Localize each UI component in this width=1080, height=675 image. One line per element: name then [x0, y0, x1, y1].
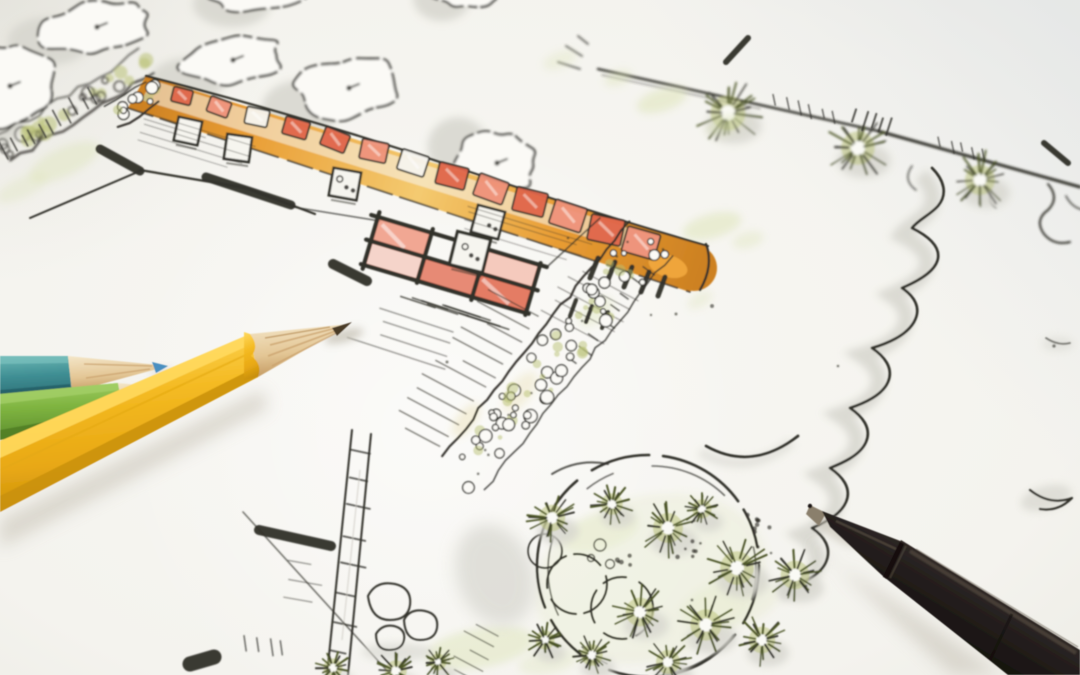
- ink-speck: [446, 361, 449, 364]
- pebble-dot: [588, 307, 591, 310]
- pebble: [460, 454, 465, 459]
- pebble: [621, 251, 626, 256]
- edge-plant-leaf-stroke: [442, 662, 450, 663]
- gravel-dot: [615, 557, 620, 562]
- pebble: [639, 279, 645, 285]
- pebble-green: [554, 351, 559, 356]
- bed-plant-center: [663, 657, 673, 667]
- pebble-green: [553, 342, 563, 352]
- paver: [359, 138, 390, 163]
- pebble: [492, 424, 498, 430]
- pebble: [610, 250, 616, 256]
- fence-shrub-center: [974, 174, 987, 187]
- fence-shrub-leaf-stroke: [858, 128, 859, 140]
- pebble: [472, 436, 480, 444]
- pebble: [495, 449, 504, 458]
- pebble: [128, 95, 137, 104]
- ink-speck: [710, 304, 714, 308]
- pen-tip-point: [808, 504, 812, 508]
- ink-speck: [805, 585, 808, 588]
- pebble: [566, 353, 573, 360]
- gravel-dot: [699, 542, 702, 545]
- pebble: [537, 335, 547, 345]
- pebble-dot: [581, 320, 584, 323]
- garden-plan-photo: [0, 0, 1080, 675]
- gravel-dot: [753, 530, 757, 534]
- bed-plant-leaf-stroke: [593, 641, 594, 649]
- ink-speck: [650, 314, 652, 316]
- ink-speck: [567, 237, 570, 240]
- stepping-square-outline: [449, 231, 490, 272]
- bed-plant-leaf-stroke: [793, 550, 794, 568]
- bed-plant-center: [547, 513, 558, 524]
- pebble-dot: [477, 472, 480, 475]
- pebble: [524, 411, 531, 418]
- pebble: [566, 318, 572, 324]
- pebble-green: [533, 360, 542, 369]
- ink-speck: [837, 365, 840, 368]
- pebble: [522, 422, 529, 429]
- pebble: [599, 277, 610, 288]
- pebble-green: [503, 391, 515, 403]
- gravel-dot: [627, 553, 631, 557]
- pebble-green: [614, 265, 626, 277]
- pebble-green: [603, 269, 609, 275]
- pebble: [648, 239, 654, 245]
- pebble-green: [588, 298, 594, 304]
- pebble: [479, 429, 492, 442]
- gravel-dot: [675, 555, 680, 560]
- stepping-square: [448, 231, 490, 276]
- gravel-dot: [755, 522, 760, 527]
- bed-plant-leaf-stroke: [573, 656, 586, 657]
- stepping-square: [173, 117, 202, 149]
- pebble: [490, 413, 497, 420]
- bed-plant-leaf-stroke: [668, 536, 669, 558]
- hedge-leaf-blob: [114, 66, 127, 79]
- pebble: [566, 340, 576, 350]
- pebble: [146, 82, 158, 94]
- pebble: [600, 314, 612, 326]
- bed-plant-leaf-stroke: [649, 610, 659, 611]
- pebble: [601, 309, 606, 314]
- pebble: [463, 482, 475, 494]
- gravel-dot: [694, 549, 698, 553]
- pebble: [147, 98, 153, 104]
- pebble: [512, 405, 518, 411]
- gravel-dot: [684, 547, 687, 550]
- edge-plant-leaf-stroke: [427, 662, 435, 663]
- ink-speck: [675, 313, 678, 316]
- pebble: [503, 419, 515, 431]
- gravel-dot: [690, 539, 694, 543]
- pebble: [556, 365, 568, 377]
- pebble-dot: [484, 449, 487, 452]
- gravel-dot: [628, 563, 632, 567]
- pebble-dot: [662, 248, 665, 251]
- bed-plant-leaf-stroke: [648, 526, 659, 527]
- pebble-green: [524, 390, 531, 397]
- boulder-shade: [362, 643, 434, 661]
- fence-shrub-leaf-stroke: [978, 154, 979, 172]
- bed-plant-leaf-stroke: [591, 504, 607, 505]
- gravel-dot: [767, 525, 771, 529]
- pebble: [541, 391, 554, 404]
- ink-speck: [770, 552, 773, 555]
- pebble-green: [498, 435, 503, 440]
- teal-pencil-highlight: [0, 356, 68, 364]
- edge-plant-leaf-stroke: [396, 654, 397, 667]
- hedge-leaf-blob: [124, 75, 134, 85]
- pebble: [565, 323, 573, 331]
- ink-speck: [691, 599, 694, 602]
- pebble-dot: [626, 241, 629, 244]
- wall-bar: [190, 657, 214, 664]
- pebble-green: [605, 259, 614, 268]
- bed-plant-leaf-stroke: [762, 646, 763, 659]
- bed-plant-leaf-stroke: [688, 510, 697, 511]
- pebble: [535, 379, 546, 390]
- bed-plant-leaf-stroke: [794, 582, 795, 601]
- pebble: [595, 296, 605, 306]
- pebble-green: [578, 347, 588, 357]
- gravel-dot: [757, 519, 761, 523]
- pebble: [586, 284, 597, 295]
- fence-shrub-leaf-stroke: [835, 147, 848, 148]
- gravel-dot: [691, 554, 695, 558]
- pebble-green: [552, 331, 561, 340]
- bed-plant-leaf-stroke: [530, 640, 542, 641]
- pebble-green: [583, 305, 588, 310]
- pebble: [649, 250, 660, 261]
- pebble: [511, 412, 517, 418]
- bed-plant-center: [634, 606, 646, 618]
- edge-plant-leaf-stroke: [379, 670, 391, 671]
- stepping-square-outline: [329, 168, 361, 200]
- pebble: [661, 251, 669, 259]
- bed-plant-leaf-stroke: [666, 502, 667, 520]
- ink-speck: [756, 545, 759, 548]
- pebble-dot: [487, 454, 490, 457]
- photo-garden-plan: [0, 0, 1080, 675]
- pebble-green: [113, 105, 123, 115]
- edge-plant-leaf-stroke: [436, 652, 437, 659]
- pebble-green: [473, 445, 483, 455]
- gravel-dot: [745, 513, 749, 517]
- bed-plant-leaf-stroke: [763, 624, 764, 634]
- pebble-green: [575, 311, 583, 319]
- paver: [244, 106, 270, 127]
- hedge-leaf-blob: [38, 117, 45, 124]
- hedge-leaf-blob: [139, 53, 154, 68]
- ink-speck: [1052, 344, 1056, 348]
- fence-shrub-leaf-stroke: [707, 112, 721, 113]
